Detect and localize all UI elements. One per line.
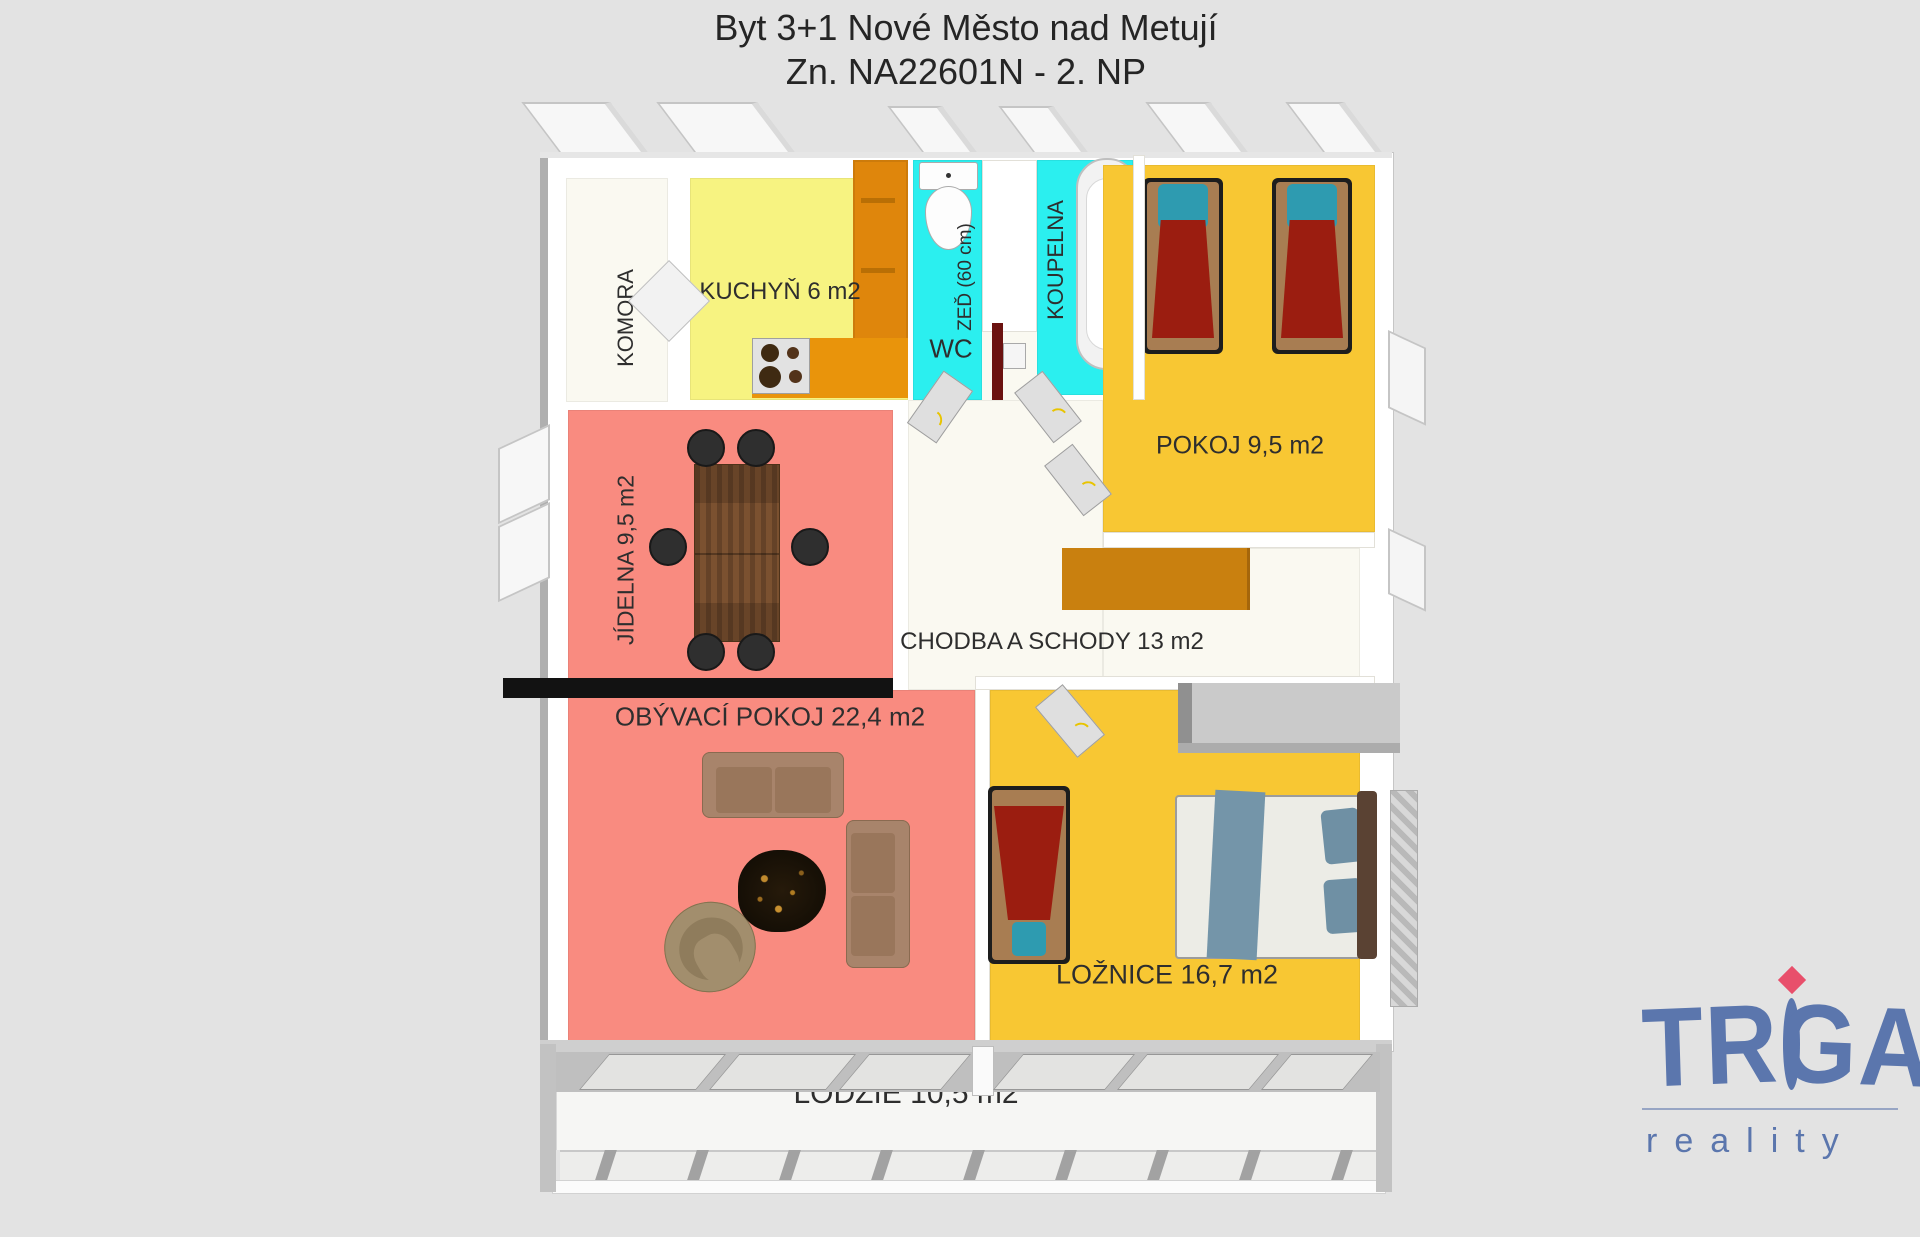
sofa [702,752,844,818]
bed-pillow [1012,922,1046,956]
logo-letters-tr: TR [1640,992,1780,1100]
wall-60cm [982,160,1037,332]
floor-plan-page: Byt 3+1 Nové Město nad Metují Zn. NA2260… [0,0,1920,1237]
outer-wall-top-edge [540,152,1392,158]
balcony-bottom-edge [552,1180,1386,1194]
pipe-icon [992,323,1003,401]
bed-blanket [1152,220,1214,338]
room-kuchyn-label: KUCHYŇ 6 m2 [699,278,860,306]
wall-pokoj-bottom [1103,532,1375,548]
bed-blanket [1281,220,1343,338]
sofa-cushion [716,767,772,813]
stairs [1062,548,1250,610]
room-pokoj-label: POKOJ 9,5 m2 [1156,432,1324,461]
window-icon [1285,102,1385,156]
sofa-cushion [851,833,895,893]
single-bed [988,786,1070,964]
window-icon [998,106,1091,156]
cabinet-handle [861,268,895,273]
burner-icon [759,366,781,388]
window-icon [1145,102,1251,156]
burner-icon [787,347,799,359]
window-icon [656,102,798,156]
door-swing-icon [1047,407,1069,429]
door-swing-icon [1077,480,1099,502]
cabinet-handle [861,198,895,203]
chair-icon [687,633,725,671]
door-swing-icon [921,408,944,431]
stove [752,338,810,394]
window-icon [521,102,651,156]
room-wc-label: WC [929,334,972,365]
logo-letters-ga: GA [1778,992,1920,1101]
chair-icon [649,528,687,566]
chair-icon [687,429,725,467]
door-swing-icon [1070,722,1092,744]
wardrobe [1178,683,1400,753]
balcony-side-wall [540,1044,556,1192]
room-loznice-label: LOŽNICE 16,7 m2 [1056,960,1278,991]
logo-triga: TR GA reality [1642,988,1910,1188]
wardrobe-front [1178,743,1400,753]
burner-icon [789,370,802,383]
table-leaf [695,465,779,503]
chair-icon [737,429,775,467]
room-jidelna-label: JÍDELNA 9,5 m2 [613,475,640,645]
double-bed [1175,795,1377,955]
room-komora-label: KOMORA [613,269,639,367]
room-koupelna-label: KOUPELNA [1043,200,1069,320]
chair-icon [737,633,775,671]
bed-headboard [1357,791,1377,959]
table-seam [695,553,779,555]
sofa-cushion [775,767,831,813]
single-bed [1272,178,1352,354]
window-icon [887,106,980,156]
balcony-divider-wall [972,1046,994,1096]
single-bed [1143,178,1223,354]
radiator-icon [1390,790,1418,1007]
burner-icon [761,344,779,362]
washbasin-icon [1003,343,1026,369]
tv-sideboard [503,678,893,698]
chair-icon [791,528,829,566]
outer-wall-left-shadow [540,152,548,1050]
logo-tagline: reality [1642,1122,1910,1161]
dining-table [694,464,780,642]
wall-koupelna-pokoj [1133,155,1145,400]
logo-brand: TR GA [1642,988,1910,1092]
bed-runner [1207,790,1266,960]
wall-60cm-label: ZEĎ (60 cm) [955,223,977,331]
kitchen-cabinet [853,160,908,343]
sofa [846,820,910,968]
title-line-1: Byt 3+1 Nové Město nad Metují [440,6,1492,50]
title-line-2: Zn. NA22601N - 2. NP [440,50,1492,94]
sofa-cushion [851,896,895,956]
room-obyvak-label: OBÝVACÍ POKOJ 22,4 m2 [615,702,925,733]
page-title: Byt 3+1 Nové Město nad Metují Zn. NA2260… [440,6,1492,94]
flush-button [946,173,951,178]
room-chodba-label: CHODBA A SCHODY 13 m2 [900,628,1204,656]
